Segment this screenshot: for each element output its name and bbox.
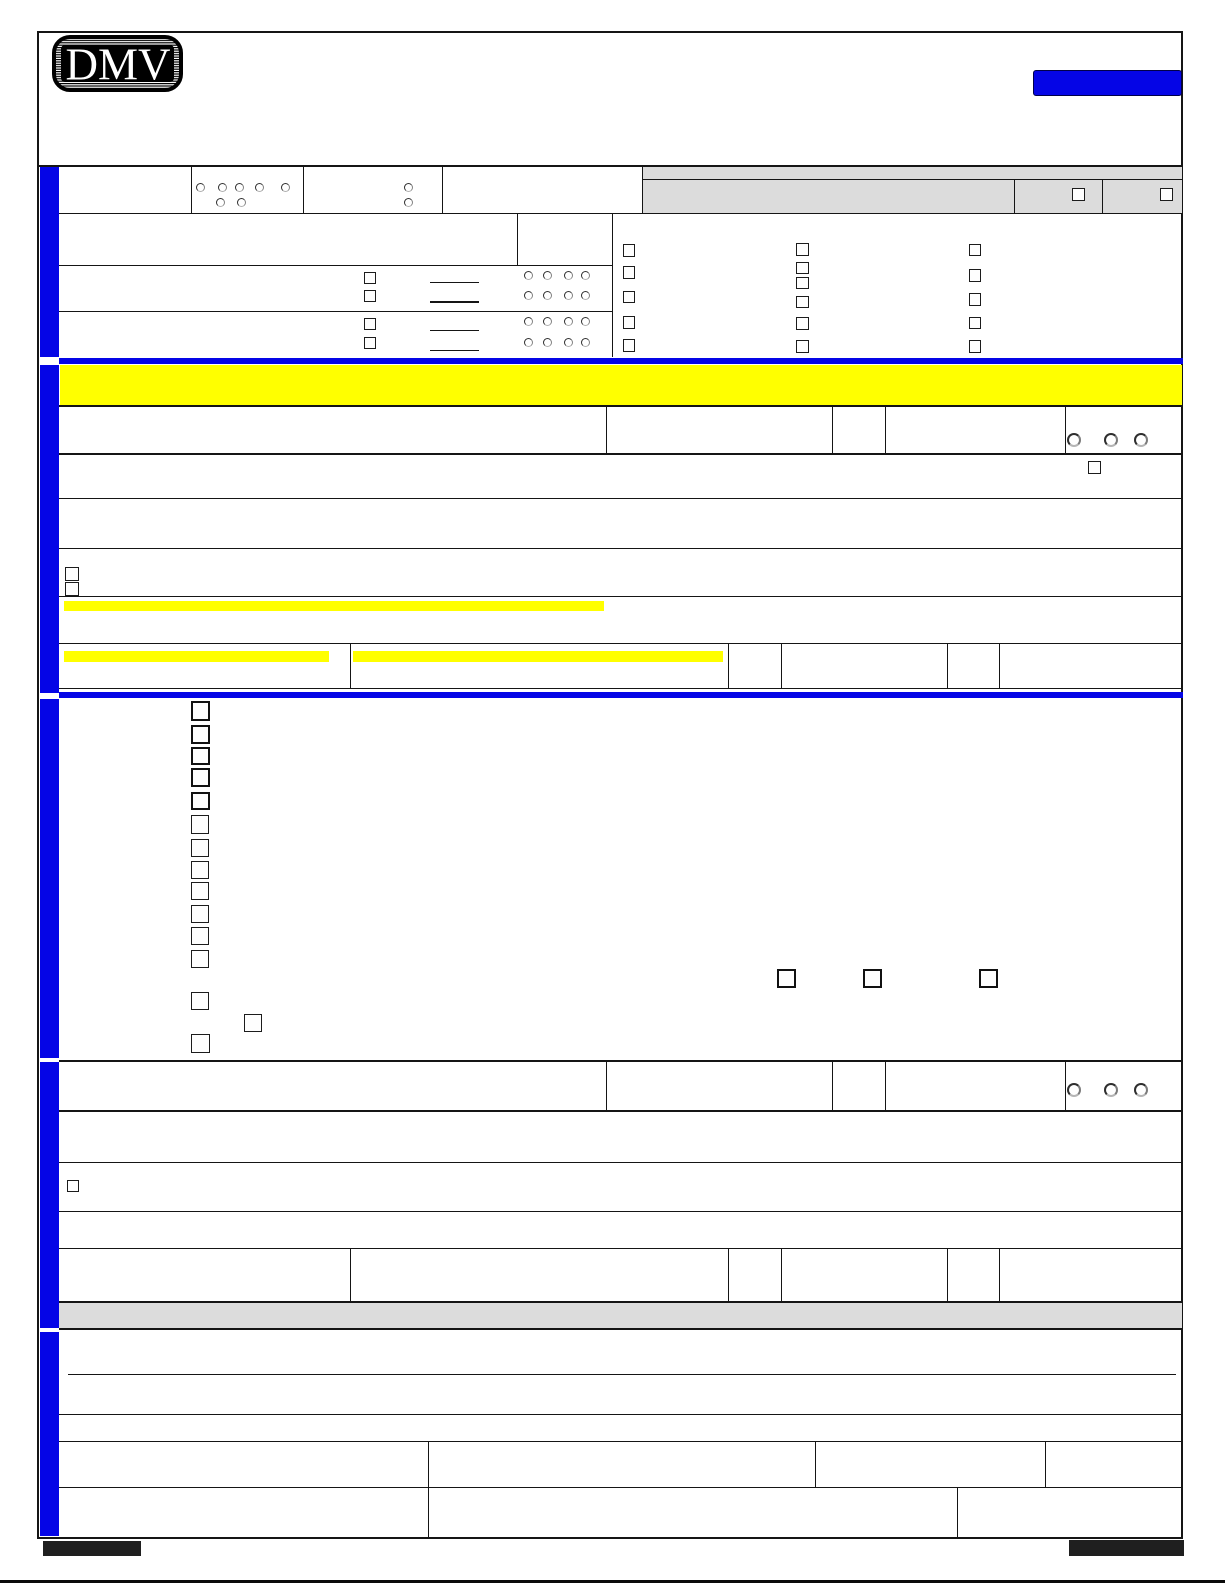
- svg-text:DMV: DMV: [65, 40, 170, 90]
